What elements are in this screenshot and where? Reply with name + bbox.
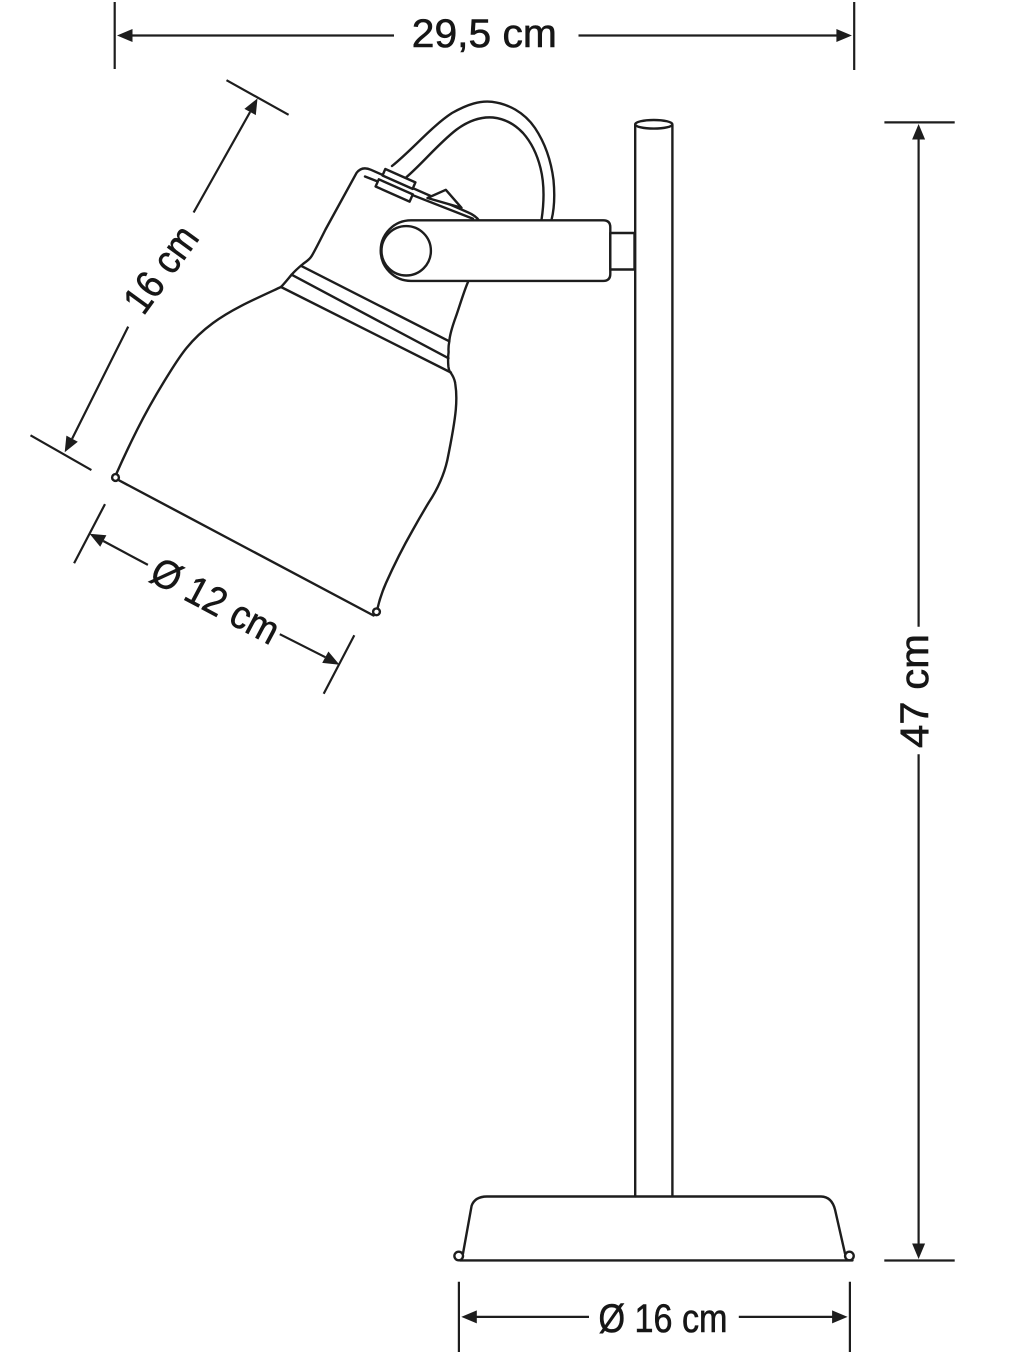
svg-text:Ø 16 cm: Ø 16 cm [599,1297,728,1341]
svg-text:29,5 cm: 29,5 cm [412,12,557,56]
svg-text:47 cm: 47 cm [893,634,937,748]
